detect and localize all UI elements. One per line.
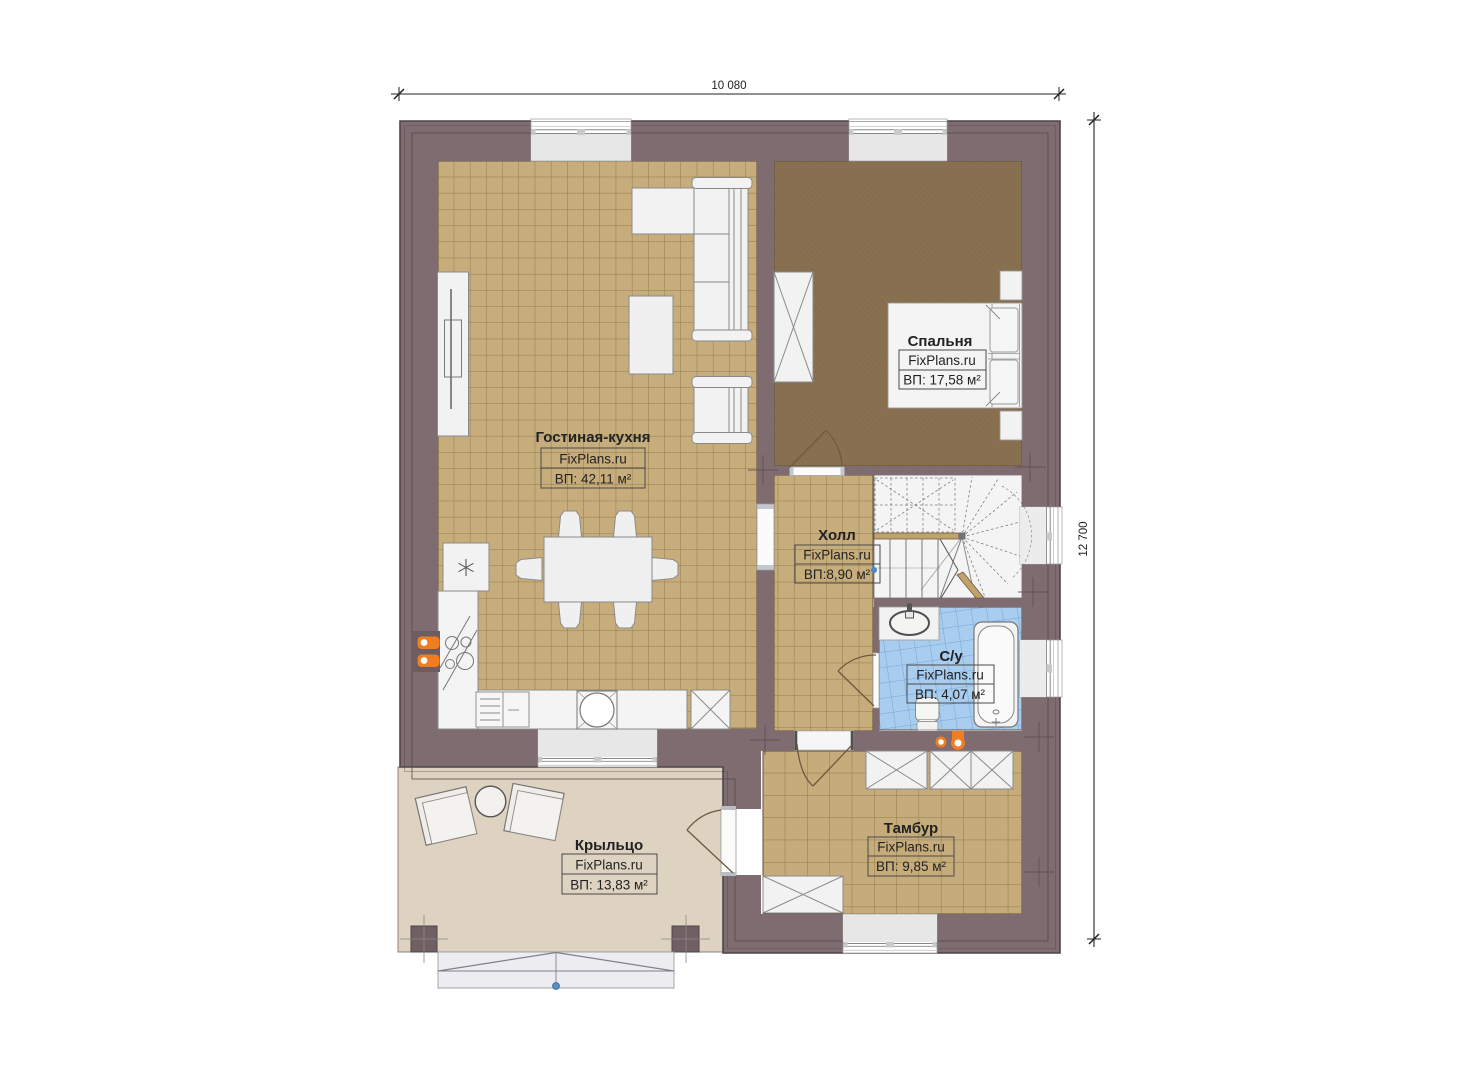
svg-text:ВП: 13,83 м²: ВП: 13,83 м² xyxy=(570,878,648,893)
svg-text:Холл: Холл xyxy=(818,527,856,544)
svg-text:FixPlans.ru: FixPlans.ru xyxy=(877,840,945,855)
svg-text:С/у: С/у xyxy=(939,648,963,665)
svg-text:FixPlans.ru: FixPlans.ru xyxy=(803,548,871,563)
svg-text:Тамбур: Тамбур xyxy=(884,820,938,837)
svg-text:Крыльцо: Крыльцо xyxy=(575,837,643,854)
svg-text:ВП: 4,07 м²: ВП: 4,07 м² xyxy=(915,687,986,702)
svg-text:ВП: 17,58 м²: ВП: 17,58 м² xyxy=(903,373,981,388)
svg-text:12 700: 12 700 xyxy=(1078,521,1090,556)
svg-text:FixPlans.ru: FixPlans.ru xyxy=(908,353,976,368)
svg-text:10 080: 10 080 xyxy=(711,80,746,92)
svg-text:FixPlans.ru: FixPlans.ru xyxy=(559,452,627,467)
svg-text:Гостиная-кухня: Гостиная-кухня xyxy=(536,429,651,446)
svg-text:FixPlans.ru: FixPlans.ru xyxy=(916,668,984,683)
svg-text:Спальня: Спальня xyxy=(908,333,973,350)
svg-text:ВП: 9,85 м²: ВП: 9,85 м² xyxy=(876,859,947,874)
svg-text:FixPlans.ru: FixPlans.ru xyxy=(575,858,643,873)
svg-text:ВП:8,90 м²: ВП:8,90 м² xyxy=(804,567,871,582)
svg-text:ВП: 42,11 м²: ВП: 42,11 м² xyxy=(555,472,632,487)
